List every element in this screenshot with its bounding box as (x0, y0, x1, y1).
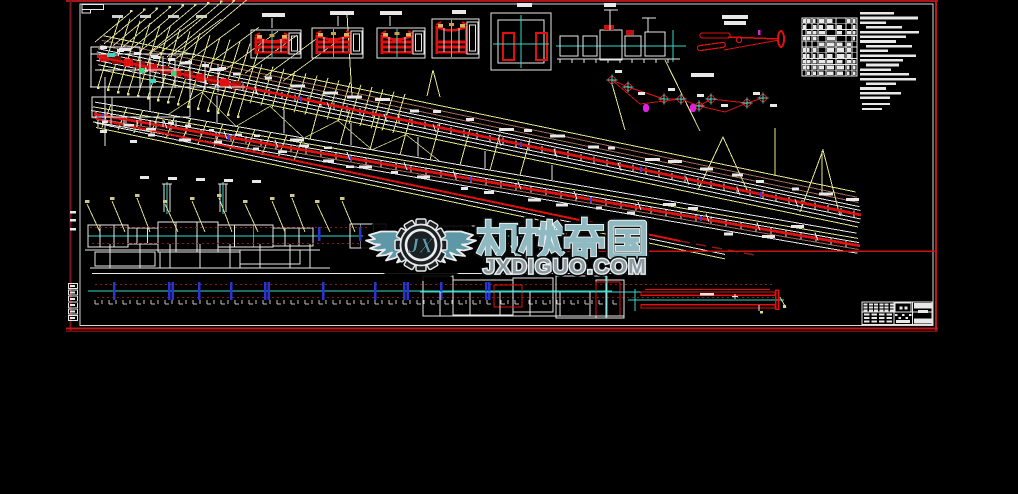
svg-text:JXDIGUO.COM: JXDIGUO.COM (483, 255, 647, 279)
svg-text:JX: JX (408, 234, 435, 258)
